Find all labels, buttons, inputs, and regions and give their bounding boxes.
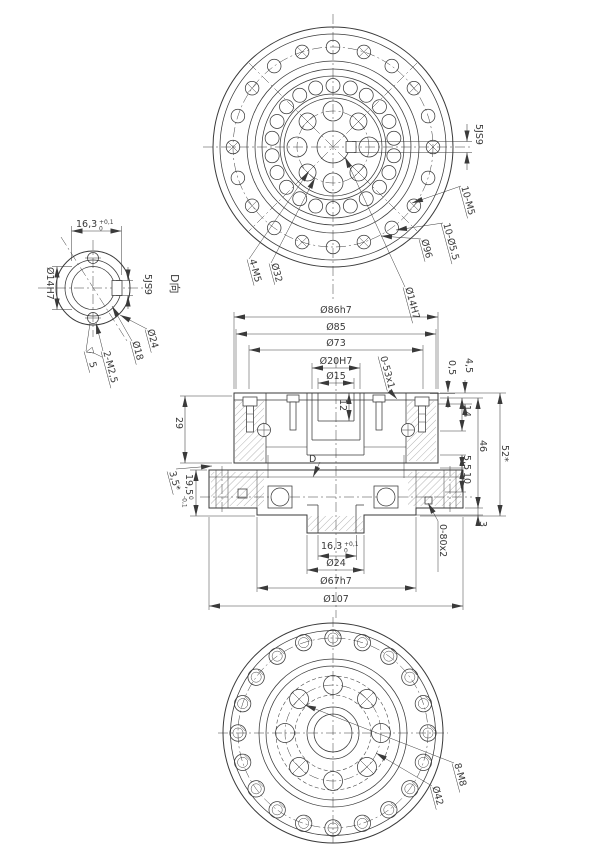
keyway bbox=[112, 281, 122, 296]
bearing-ball bbox=[271, 488, 289, 506]
dim-dia-15: Ø15 bbox=[318, 371, 354, 389]
svg-text:Ø42: Ø42 bbox=[429, 785, 445, 807]
svg-text:Ø86h7: Ø86h7 bbox=[320, 305, 352, 316]
bearing-ball bbox=[382, 166, 396, 180]
svg-text:5: 5 bbox=[86, 361, 98, 370]
svg-text:Ø14H7: Ø14H7 bbox=[44, 267, 55, 300]
svg-text:Ø24: Ø24 bbox=[144, 328, 160, 350]
dim-key-length-section: 16,3 +0,1 0 bbox=[318, 535, 359, 560]
bearing-ball bbox=[343, 81, 357, 95]
cap-screw-socket bbox=[299, 818, 309, 828]
cap-screw bbox=[269, 802, 285, 818]
svg-text:46: 46 bbox=[477, 440, 488, 452]
bearing-ball bbox=[387, 149, 401, 163]
detail-view: 16,3 +0,1 0 Ø14H7 5JS9 D向 Ø24 Ø18 2-M2,5 bbox=[38, 219, 182, 388]
svg-text:5JS9: 5JS9 bbox=[473, 124, 484, 145]
dim-height-29: 29 bbox=[173, 396, 232, 463]
svg-text:Ø107: Ø107 bbox=[323, 594, 349, 605]
svg-text:5JS9: 5JS9 bbox=[142, 274, 153, 295]
cap-screw-socket bbox=[418, 757, 428, 767]
outer-bolt-hole bbox=[231, 171, 245, 185]
drawing-sheet: 5JS9 4-M5 Ø32 Ø14H7 Ø96 10-Ø5.5 10-M5 bbox=[0, 0, 607, 845]
svg-text:Ø24: Ø24 bbox=[326, 558, 346, 569]
label-bolt-circle-42: Ø42 bbox=[376, 753, 446, 810]
detail-view-title: D向 bbox=[168, 274, 182, 293]
svg-text:0: 0 bbox=[344, 548, 348, 555]
bearing-ball bbox=[309, 199, 323, 213]
bearing-ball bbox=[265, 149, 279, 163]
svg-text:Ø73: Ø73 bbox=[326, 338, 346, 349]
svg-text:29: 29 bbox=[173, 417, 184, 429]
section-view: D 12 Ø86h7 Ø85 Ø73 Ø20H7 Ø15 0-53x1 bbox=[166, 305, 510, 618]
bearing-ball bbox=[265, 131, 279, 145]
dim-step-05: 0,5 bbox=[430, 360, 457, 408]
svg-text:Ø67h7: Ø67h7 bbox=[320, 576, 352, 587]
svg-text:16,3: 16,3 bbox=[321, 541, 342, 552]
svg-text:2-M2,5: 2-M2,5 bbox=[100, 350, 119, 385]
svg-text:10: 10 bbox=[461, 472, 472, 484]
svg-text:10-M5: 10-M5 bbox=[458, 185, 476, 217]
svg-text:D: D bbox=[309, 454, 316, 465]
keyway bbox=[346, 142, 356, 153]
cap-screw-socket bbox=[357, 818, 367, 828]
bearing-ball bbox=[382, 114, 396, 128]
hub-section bbox=[307, 393, 364, 455]
label-tapped-m8: 8-M8 bbox=[305, 705, 469, 793]
bearing-ball bbox=[270, 114, 284, 128]
label-mid-dia: Ø18 bbox=[112, 306, 146, 365]
bearing-ball bbox=[293, 192, 307, 206]
svg-text:16,3: 16,3 bbox=[76, 219, 97, 230]
svg-text:0-53x1: 0-53x1 bbox=[377, 355, 396, 390]
svg-text:3,5*: 3,5* bbox=[166, 470, 182, 492]
view-direction-d: D bbox=[309, 454, 320, 477]
outer-bolt-hole bbox=[385, 59, 399, 73]
bearing-ball bbox=[309, 81, 323, 95]
outer-bolt-hole bbox=[267, 59, 281, 73]
cap-screw-socket bbox=[272, 805, 282, 815]
bearing-ball bbox=[359, 88, 373, 102]
cap-screw bbox=[248, 669, 264, 685]
label-surface-finish: 5 bbox=[83, 323, 106, 373]
svg-text:0,5: 0,5 bbox=[446, 360, 457, 375]
svg-text:52*: 52* bbox=[499, 445, 510, 462]
bearing-ball bbox=[343, 199, 357, 213]
cap-screw bbox=[381, 802, 397, 818]
dim-depth-12: 12 bbox=[337, 393, 349, 421]
svg-text:4-M5: 4-M5 bbox=[246, 258, 263, 284]
svg-text:Ø85: Ø85 bbox=[326, 322, 346, 333]
svg-text:Ø96: Ø96 bbox=[418, 238, 434, 260]
svg-text:12: 12 bbox=[337, 399, 348, 411]
bearing-ball bbox=[372, 180, 386, 194]
svg-text:14: 14 bbox=[461, 405, 472, 417]
cap-screw-socket bbox=[384, 805, 394, 815]
svg-text:0: 0 bbox=[99, 226, 103, 233]
cap-screw-socket bbox=[251, 672, 261, 682]
bottom-view: 8-M8 Ø42 bbox=[218, 617, 469, 845]
svg-text:10-Ø5.5: 10-Ø5.5 bbox=[440, 222, 460, 262]
svg-text:Ø20H7: Ø20H7 bbox=[320, 356, 353, 367]
bearing-ball bbox=[372, 100, 386, 114]
bearing-ball bbox=[293, 88, 307, 102]
cad-drawing: 5JS9 4-M5 Ø32 Ø14H7 Ø96 10-Ø5.5 10-M5 bbox=[0, 0, 607, 845]
svg-text:3: 3 bbox=[477, 521, 488, 527]
bearing-ball bbox=[387, 131, 401, 145]
label-oring-bottom: 0-80x2 bbox=[428, 503, 448, 572]
bearing-ball bbox=[270, 166, 284, 180]
svg-text:4,5: 4,5 bbox=[463, 358, 474, 373]
label-oring-top: 0-53x1 bbox=[377, 354, 397, 399]
cap-screw bbox=[295, 815, 311, 831]
svg-text:Ø15: Ø15 bbox=[326, 371, 346, 382]
top-view: 5JS9 4-M5 Ø32 Ø14H7 Ø96 10-Ø5.5 10-M5 bbox=[203, 14, 484, 324]
label-bolt-circle: Ø96 bbox=[381, 236, 435, 262]
bearing-ball bbox=[280, 180, 294, 194]
svg-text:5,5: 5,5 bbox=[461, 455, 472, 470]
cap-screw bbox=[415, 754, 431, 770]
cap-screw bbox=[354, 815, 370, 831]
cap-screw-socket bbox=[238, 757, 248, 767]
bearing-ball bbox=[359, 192, 373, 206]
svg-text:19,5: 19,5 bbox=[183, 474, 194, 495]
svg-text:0-80x2: 0-80x2 bbox=[437, 524, 448, 557]
svg-text:Ø32: Ø32 bbox=[268, 262, 284, 284]
bearing-ball bbox=[280, 100, 294, 114]
dim-depth-14: 14 bbox=[440, 398, 483, 431]
svg-text:-0,1: -0,1 bbox=[181, 496, 188, 508]
cap-screw bbox=[234, 754, 250, 770]
svg-text:8-M8: 8-M8 bbox=[451, 762, 468, 788]
bearing-ball bbox=[377, 488, 395, 506]
svg-text:Ø14H7: Ø14H7 bbox=[402, 286, 421, 320]
svg-text:Ø18: Ø18 bbox=[129, 340, 145, 362]
label-outer-tapped: 10-M5 bbox=[412, 184, 477, 219]
dim-step-55: 5,5 bbox=[440, 455, 472, 470]
